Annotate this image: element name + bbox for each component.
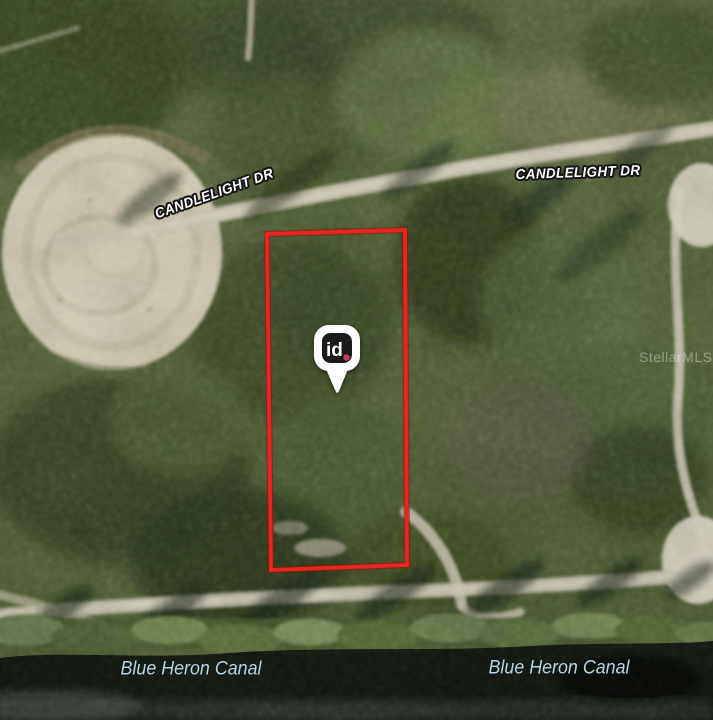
satellite-map: id CANDLELIGHT DR CANDLELIGHT DR Blue He… (0, 0, 713, 720)
stellar-mls-watermark: StellarMLS (639, 350, 712, 364)
water-label-blue-heron-east: Blue Heron Canal (489, 659, 630, 678)
water-label-blue-heron-west: Blue Heron Canal (121, 660, 262, 679)
road-label-candlelight-east: CANDLELIGHT DR (515, 163, 640, 181)
pin-brand-dot (343, 354, 349, 360)
pin-brand-label: id (326, 340, 343, 361)
property-pin[interactable]: id (303, 315, 369, 399)
